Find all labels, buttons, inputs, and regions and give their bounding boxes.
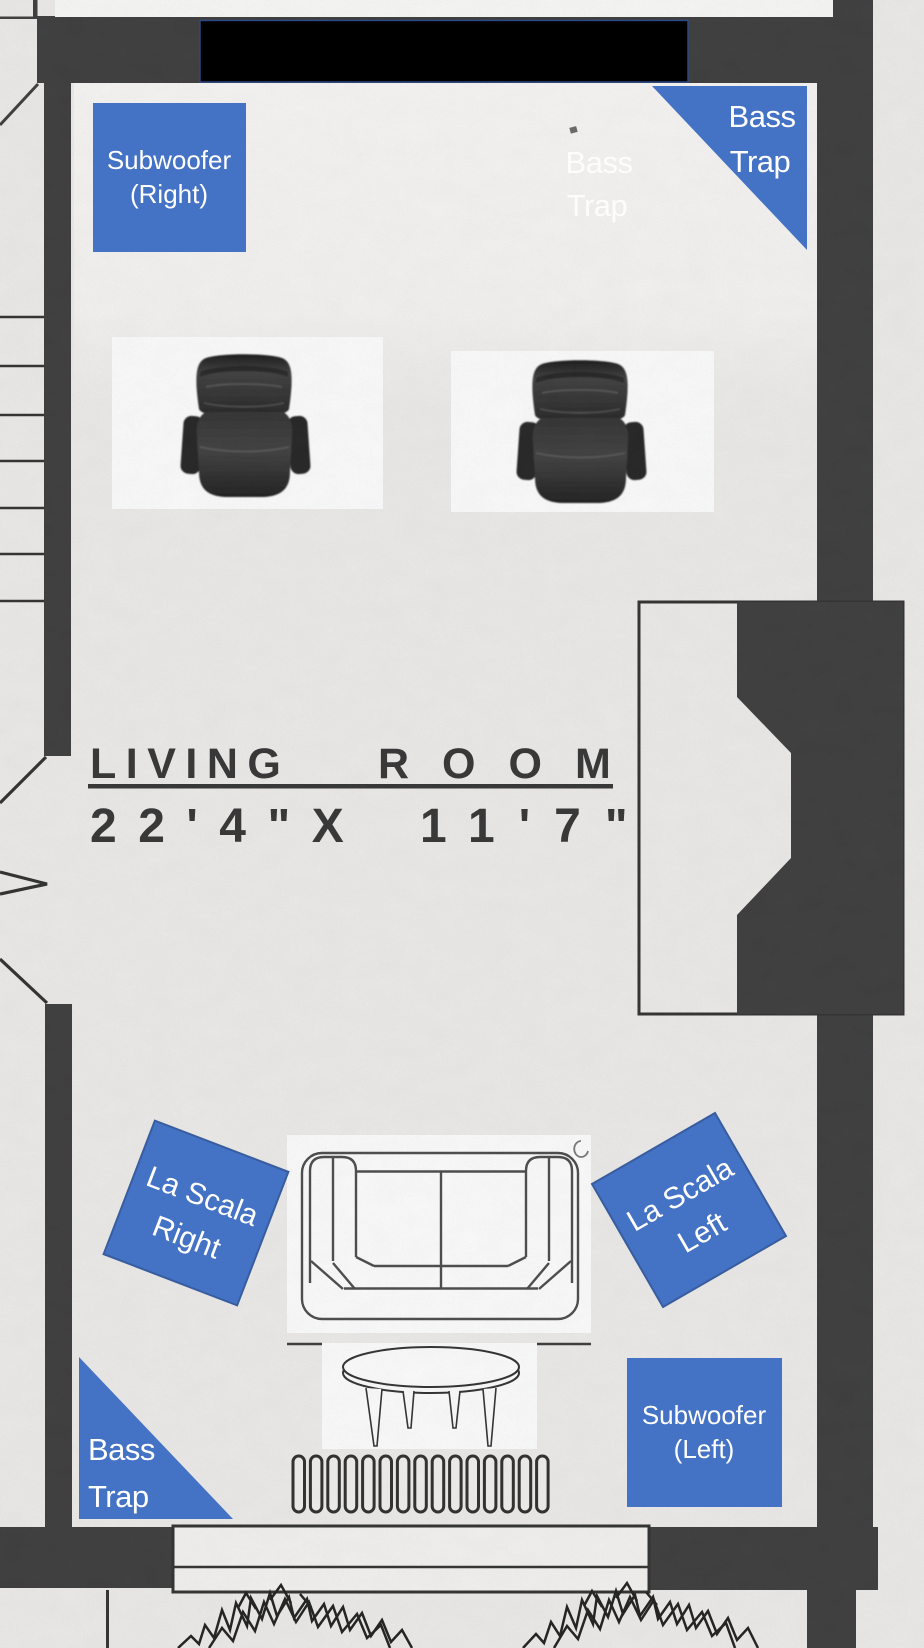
svg-text:(Left): (Left)	[674, 1434, 735, 1464]
svg-text:Trap: Trap	[88, 1479, 149, 1514]
svg-text:Subwoofer: Subwoofer	[107, 145, 232, 175]
svg-text:Trap: Trap	[730, 144, 791, 179]
svg-text:Bass: Bass	[729, 99, 796, 134]
svg-text:Trap: Trap	[567, 188, 628, 223]
svg-text:Bass: Bass	[566, 145, 633, 180]
svg-text:Bass: Bass	[88, 1432, 155, 1467]
svg-text:Subwoofer: Subwoofer	[642, 1400, 767, 1430]
svg-text:(Right): (Right)	[130, 179, 208, 209]
